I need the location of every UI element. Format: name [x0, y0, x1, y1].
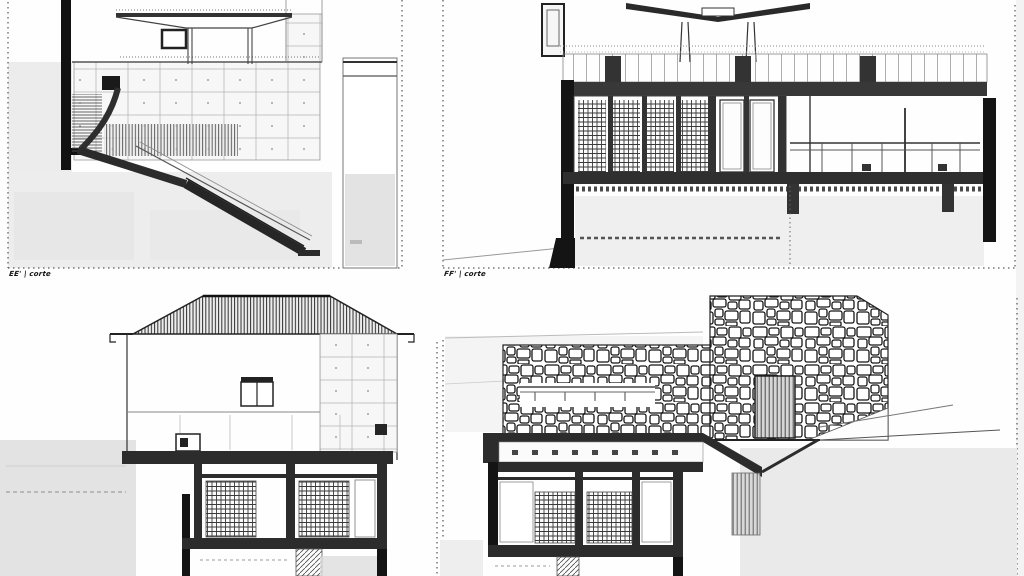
door: [720, 100, 744, 172]
tall-wall-pillar: [343, 58, 397, 268]
chimney: [542, 4, 564, 56]
lattice-panel: [206, 481, 256, 537]
section-ff-drawing: [443, 0, 1015, 268]
rubble-stone-wall: [503, 296, 1000, 440]
flat-canopy: [116, 10, 292, 64]
lattice-panel: [535, 492, 575, 543]
lattice-panel: [299, 481, 349, 537]
sections-canvas: [0, 0, 1024, 576]
main-floor-slab: [122, 451, 393, 464]
scanned-drawing-sheet: EE' | corte FF' | corte: [0, 0, 1024, 576]
section-ee-drawing: [8, 0, 402, 268]
basement-stair: [296, 549, 322, 576]
gate-shadow-opening: [732, 473, 760, 535]
basement-stair: [557, 557, 579, 576]
timber-gate: [755, 376, 795, 438]
butterfly-canopy: [626, 3, 810, 62]
section-ff-label: FF' | corte: [444, 271, 487, 278]
basement-slab: [182, 538, 387, 549]
stone-wall-section-drawing: [440, 296, 1017, 576]
timber-slat-screen: [104, 124, 238, 156]
clerestory-band: [563, 54, 987, 82]
ground-slope-line: [443, 248, 561, 260]
right-wall-section: [983, 98, 996, 242]
floor-slab: [563, 172, 987, 184]
ground-field: [740, 448, 1017, 576]
lattice-glazed-wall: [574, 96, 786, 176]
lattice-panel: [587, 492, 632, 543]
roof-slab: [563, 82, 987, 96]
retaining-mass: [0, 440, 136, 576]
door: [750, 100, 774, 172]
facade-window: [241, 377, 273, 406]
house-cross-section-drawing: [0, 296, 437, 576]
section-ee-label: EE' | corte: [9, 271, 52, 278]
retaining-wall-section: [61, 0, 71, 170]
page-edge-shadow: [1016, 0, 1024, 576]
canopy-skylight-box: [162, 30, 186, 48]
veranda-railing: [790, 96, 980, 172]
